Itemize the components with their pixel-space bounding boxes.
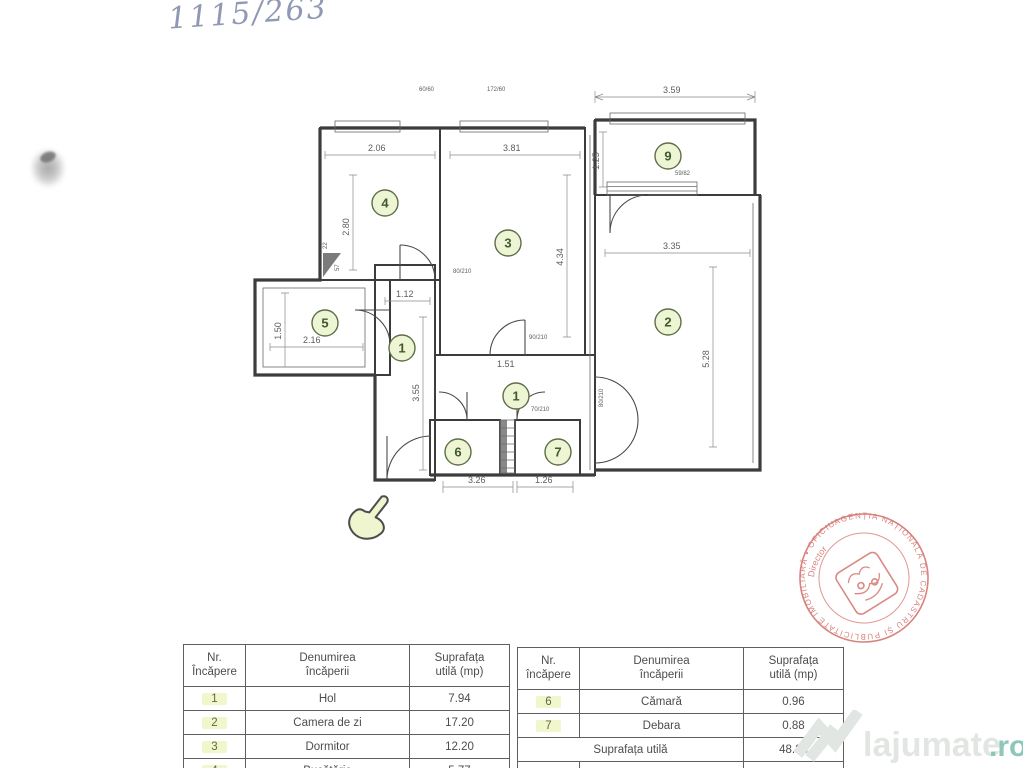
svg-text:5.28: 5.28 <box>701 350 711 368</box>
svg-text:2.06: 2.06 <box>368 143 386 153</box>
room-number-hall-b: 1 <box>503 383 529 409</box>
room-name: Debara <box>580 714 744 738</box>
svg-text:172/60: 172/60 <box>487 87 506 93</box>
header-nr: Nr. încăpere <box>518 648 580 690</box>
svg-text:AGENȚIA NAȚIONALĂ DE CADASTRU: AGENȚIA NAȚIONALĂ DE CADASTRU ȘI PUBLICI… <box>772 492 951 667</box>
floor-plan-drawing: 2.06 3.81 3.59 3.35 2.80 4.34 5.28 1.25 … <box>235 75 780 495</box>
room-name: Bucătărie <box>246 759 410 768</box>
stamp-emblem-icon <box>829 545 905 621</box>
room-area: 5.77 <box>410 759 510 768</box>
room-number-living: 2 <box>655 309 681 335</box>
room-nr: 4 <box>202 765 226 768</box>
svg-text:1.26: 1.26 <box>535 475 553 485</box>
svg-text:80/210: 80/210 <box>599 388 605 407</box>
room-number-bedroom: 3 <box>495 230 521 256</box>
svg-text:57: 57 <box>335 264 341 271</box>
room-number-debara: 7 <box>545 439 571 465</box>
total-label: Suprafața utilă <box>518 738 744 762</box>
room-number-balcony: 9 <box>655 143 681 169</box>
room-areas-table-left: Nr. Încăpere Denumirea încăperii Suprafa… <box>183 644 510 768</box>
svg-text:3.26: 3.26 <box>468 475 486 485</box>
stamp-ring-text: AGENȚIA NAȚIONALĂ DE CADASTRU ȘI PUBLICI… <box>772 492 951 667</box>
svg-text:7: 7 <box>554 445 561 460</box>
svg-text:22: 22 <box>323 242 329 249</box>
room-number-kitchen: 4 <box>372 190 398 216</box>
header-name: Denumirea încăperii <box>246 645 410 687</box>
shaft-hatch <box>500 420 515 473</box>
room-number-pantry: 6 <box>445 439 471 465</box>
svg-text:6: 6 <box>454 445 461 460</box>
svg-text:1.12: 1.12 <box>396 289 414 299</box>
lajumate-watermark: lajumate .ro <box>793 710 1023 768</box>
svg-text:3: 3 <box>504 236 511 251</box>
header-nr: Nr. Încăpere <box>184 645 246 687</box>
svg-text:4: 4 <box>381 196 389 211</box>
header-area: Suprafața utilă (mp) <box>744 648 844 690</box>
svg-text:1.25: 1.25 <box>591 152 601 170</box>
room-area: 7.94 <box>410 687 510 711</box>
svg-text:9: 9 <box>664 149 671 164</box>
svg-text:3.55: 3.55 <box>411 384 421 402</box>
table-row: 3 Dormitor 12.20 <box>184 735 510 759</box>
room-name: Suprafața balcoane <box>580 762 744 768</box>
svg-text:4.34: 4.34 <box>555 248 565 266</box>
room-number-bath: 5 <box>312 310 338 336</box>
room-nr: 6 <box>536 696 560 708</box>
svg-text:2.16: 2.16 <box>303 335 321 345</box>
svg-text:1.50: 1.50 <box>273 322 283 340</box>
svg-text:3.35: 3.35 <box>663 241 681 251</box>
table-header-row: Nr. încăpere Denumirea încăperii Suprafa… <box>518 648 844 690</box>
svg-text:5: 5 <box>321 316 328 331</box>
svg-text:70/210: 70/210 <box>531 407 550 413</box>
window-symbols <box>335 113 745 195</box>
room-nr: 1 <box>202 693 226 705</box>
handwritten-file-number: 1115/263 <box>167 0 389 37</box>
dimension-labels: 2.06 3.81 3.59 3.35 2.80 4.34 5.28 1.25 … <box>273 85 711 485</box>
svg-text:1: 1 <box>512 389 519 404</box>
header-name: Denumirea încăperii <box>580 648 744 690</box>
svg-text:3.59: 3.59 <box>663 85 681 95</box>
room-name: Dormitor <box>246 735 410 759</box>
table-row: 1 Hol 7.94 <box>184 687 510 711</box>
svg-text:2.80: 2.80 <box>341 218 351 236</box>
official-stamp: AGENȚIA NAȚIONALĂ DE CADASTRU ȘI PUBLICI… <box>772 492 957 667</box>
svg-text:59/82: 59/82 <box>675 171 691 177</box>
svg-text:2: 2 <box>664 315 671 330</box>
header-area: Suprafața utilă (mp) <box>410 645 510 687</box>
svg-text:80/210: 80/210 <box>453 269 472 275</box>
svg-text:3.81: 3.81 <box>503 143 521 153</box>
svg-text:60/60: 60/60 <box>419 87 435 93</box>
room-nr: 8 <box>518 762 580 768</box>
room-nr: 3 <box>202 741 226 753</box>
watermark-name: lajumate <box>863 726 1001 764</box>
table-row: 2 Camera de zi 17.20 <box>184 711 510 735</box>
watermark-logo-icon <box>801 716 855 754</box>
room-nr: 7 <box>536 720 560 732</box>
scanned-floor-plan-page: 1115/263 <box>0 0 1024 768</box>
room-name: Cămară <box>580 690 744 714</box>
table-header-row: Nr. Încăpere Denumirea încăperii Suprafa… <box>184 645 510 687</box>
hand-cursor-icon <box>343 489 399 551</box>
svg-text:1: 1 <box>398 341 405 356</box>
svg-text:1.51: 1.51 <box>497 359 515 369</box>
svg-text:90/210: 90/210 <box>529 335 548 341</box>
room-name: Camera de zi <box>246 711 410 735</box>
room-area: 17.20 <box>410 711 510 735</box>
watermark-tld: .ro <box>989 730 1023 763</box>
room-name: Hol <box>246 687 410 711</box>
room-number-hall-a: 1 <box>389 335 415 361</box>
room-nr: 2 <box>202 717 226 729</box>
room-area: 12.20 <box>410 735 510 759</box>
table-row: 4 Bucătărie 5.77 <box>184 759 510 768</box>
